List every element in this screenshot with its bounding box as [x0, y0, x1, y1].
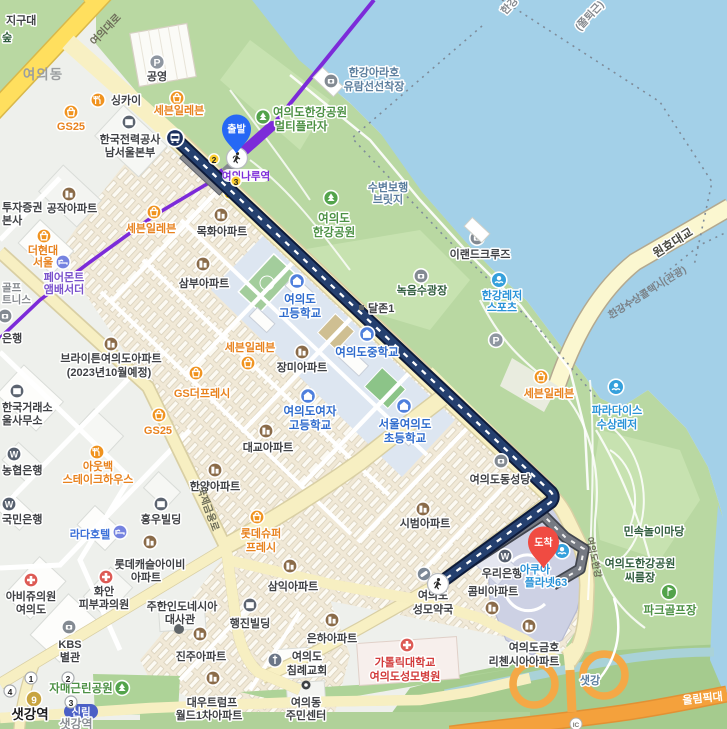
- svg-text:공영: 공영: [147, 70, 167, 83]
- svg-text:고등학교: 고등학교: [289, 418, 332, 432]
- svg-text:화안: 화안: [94, 584, 114, 598]
- svg-text:민속놀이마당: 민속놀이마당: [624, 524, 685, 538]
- svg-text:본사: 본사: [2, 213, 23, 227]
- svg-text:숲: 숲: [2, 31, 12, 44]
- svg-text:스포츠: 스포츠: [487, 301, 517, 314]
- svg-text:샛강역: 샛강역: [11, 706, 48, 722]
- svg-text:공작아파트: 공작아파트: [47, 201, 98, 215]
- svg-text:씨름장: 씨름장: [625, 570, 655, 584]
- svg-text:여의동: 여의동: [291, 695, 321, 709]
- svg-text:여의도: 여의도: [16, 602, 46, 616]
- svg-text:롯데캐슬아이비: 롯데캐슬아이비: [115, 557, 186, 571]
- svg-text:행진빌딩: 행진빌딩: [230, 616, 270, 630]
- svg-text:롯데슈퍼: 롯데슈퍼: [241, 526, 281, 540]
- svg-text:여의도: 여의도: [284, 292, 316, 306]
- svg-text:출발: 출발: [227, 123, 246, 136]
- svg-text:(2023년10월예정): (2023년10월예정): [67, 365, 152, 379]
- svg-text:삼부아파트: 삼부아파트: [179, 276, 230, 290]
- svg-text:남서울본부: 남서울본부: [105, 145, 156, 159]
- svg-text:세븐일레븐: 세븐일레븐: [154, 103, 205, 117]
- svg-text:9: 9: [31, 696, 37, 707]
- svg-text:아파트: 아파트: [131, 570, 161, 584]
- svg-text:브라이튼여의도아파트: 브라이튼여의도아파트: [60, 351, 161, 365]
- svg-text:샛강역: 샛강역: [59, 716, 92, 729]
- svg-text:여의도: 여의도: [318, 211, 350, 225]
- svg-text:더현대: 더현대: [28, 243, 58, 257]
- svg-text:2: 2: [212, 155, 217, 165]
- svg-text:파크골프장: 파크골프장: [644, 603, 697, 617]
- svg-text:한강공원: 한강공원: [313, 225, 355, 239]
- svg-text:가톨릭대학교: 가톨릭대학교: [375, 655, 436, 669]
- svg-text:수상레저: 수상레저: [597, 417, 637, 431]
- svg-text:세븐일레븐: 세븐일레븐: [126, 221, 177, 235]
- svg-text:싱카이: 싱카이: [111, 93, 141, 107]
- svg-text:콤비아파트: 콤비아파트: [468, 584, 519, 598]
- svg-text:도착: 도착: [534, 536, 553, 549]
- svg-text:지구대: 지구대: [6, 13, 36, 27]
- svg-text:한강레저: 한강레저: [482, 288, 522, 302]
- svg-text:여의도여자: 여의도여자: [284, 404, 337, 418]
- svg-text:은행: 은행: [2, 331, 22, 345]
- svg-text:주한인도네시아: 주한인도네시아: [147, 599, 219, 613]
- svg-text:진주아파트: 진주아파트: [176, 649, 227, 663]
- svg-text:GS25: GS25: [57, 121, 85, 133]
- svg-text:초등학교: 초등학교: [384, 431, 427, 445]
- svg-text:한강아라호: 한강아라호: [349, 65, 400, 79]
- svg-text:2: 2: [66, 674, 71, 684]
- svg-text:세븐일레븐: 세븐일레븐: [524, 386, 575, 400]
- svg-text:여의도: 여의도: [292, 649, 322, 663]
- svg-text:GS25: GS25: [144, 425, 172, 437]
- svg-text:프레시: 프레시: [246, 540, 276, 554]
- svg-text:녹음수광장: 녹음수광장: [397, 283, 448, 297]
- svg-text:라다호텔: 라다호텔: [70, 527, 110, 541]
- svg-text:스테이크하우스: 스테이크하우스: [63, 472, 134, 486]
- svg-text:월드1차아파트: 월드1차아파트: [176, 708, 243, 722]
- svg-text:이랜드크루즈: 이랜드크루즈: [450, 247, 511, 261]
- svg-text:침례교회: 침례교회: [287, 663, 327, 677]
- svg-text:목화아파트: 목화아파트: [197, 224, 248, 238]
- svg-text:GS더프레시: GS더프레시: [174, 386, 230, 400]
- svg-text:서울: 서울: [33, 255, 53, 269]
- svg-text:샛강: 샛강: [580, 673, 600, 687]
- svg-text:홍우빌딩: 홍우빌딩: [141, 512, 181, 526]
- svg-text:대우트럼프: 대우트럼프: [187, 695, 238, 709]
- svg-text:한국전력공사: 한국전력공사: [100, 132, 162, 146]
- svg-text:여의나루역: 여의나루역: [222, 170, 270, 183]
- svg-text:울사무소: 울사무소: [2, 413, 42, 427]
- svg-text:KBS: KBS: [58, 639, 81, 651]
- svg-text:여의도한강공원: 여의도한강공원: [605, 556, 676, 570]
- svg-text:주민센터: 주민센터: [286, 708, 326, 722]
- svg-text:투자증권: 투자증권: [2, 200, 42, 214]
- svg-text:플라넷63: 플라넷63: [525, 575, 568, 589]
- svg-text:수변보행: 수변보행: [368, 180, 408, 194]
- svg-text:여의도동성당: 여의도동성당: [470, 472, 531, 486]
- svg-text:서울여의도: 서울여의도: [379, 417, 432, 431]
- svg-text:별관: 별관: [60, 650, 80, 664]
- svg-text:성모약국: 성모약국: [413, 602, 453, 616]
- svg-text:삼익아파트: 삼익아파트: [268, 579, 319, 593]
- svg-text:3: 3: [69, 698, 74, 708]
- svg-text:앰배서더: 앰배서더: [44, 282, 84, 296]
- svg-text:고등학교: 고등학교: [279, 306, 322, 320]
- svg-text:세븐일레븐: 세븐일레븐: [225, 340, 276, 354]
- svg-text:여의도중학교: 여의도중학교: [335, 345, 399, 359]
- svg-text:파라다이스: 파라다이스: [592, 403, 643, 417]
- svg-text:여의도금호: 여의도금호: [509, 640, 560, 654]
- svg-text:우리은행: 우리은행: [482, 566, 522, 580]
- svg-text:여의도한강공원: 여의도한강공원: [273, 105, 347, 119]
- svg-text:4: 4: [8, 687, 13, 697]
- svg-text:페어몬트: 페어몬트: [44, 270, 84, 284]
- svg-text:국민은행: 국민은행: [2, 512, 42, 526]
- svg-text:자매근린공원: 자매근린공원: [49, 681, 112, 695]
- svg-text:1: 1: [29, 674, 34, 684]
- svg-text:한국거래소: 한국거래소: [2, 400, 53, 414]
- svg-text:아비쥬의원: 아비쥬의원: [6, 589, 57, 603]
- svg-text:3: 3: [234, 177, 239, 187]
- svg-text:달존1: 달존1: [368, 302, 394, 315]
- svg-text:골프: 골프: [2, 282, 22, 294]
- svg-text:리첸시아아파트: 리첸시아아파트: [489, 654, 560, 668]
- svg-text:피부과의원: 피부과의원: [79, 597, 130, 611]
- svg-text:IC: IC: [573, 722, 580, 729]
- svg-text:여의동: 여의동: [23, 66, 63, 82]
- svg-text:유람선선착장: 유람선선착장: [344, 79, 405, 93]
- svg-text:대교아파트: 대교아파트: [243, 440, 294, 454]
- svg-text:트니스: 트니스: [2, 293, 31, 306]
- svg-text:장미아파트: 장미아파트: [277, 360, 328, 374]
- svg-text:멀티플라자: 멀티플라자: [275, 119, 328, 133]
- svg-text:은하아파트: 은하아파트: [307, 631, 358, 645]
- svg-text:아웃백: 아웃백: [83, 459, 113, 473]
- svg-text:여의도성모병원: 여의도성모병원: [370, 669, 441, 683]
- svg-text:시범아파트: 시범아파트: [400, 516, 451, 530]
- svg-text:농협은행: 농협은행: [2, 463, 42, 477]
- svg-text:브릿지: 브릿지: [373, 192, 403, 206]
- svg-text:대사관: 대사관: [165, 612, 195, 626]
